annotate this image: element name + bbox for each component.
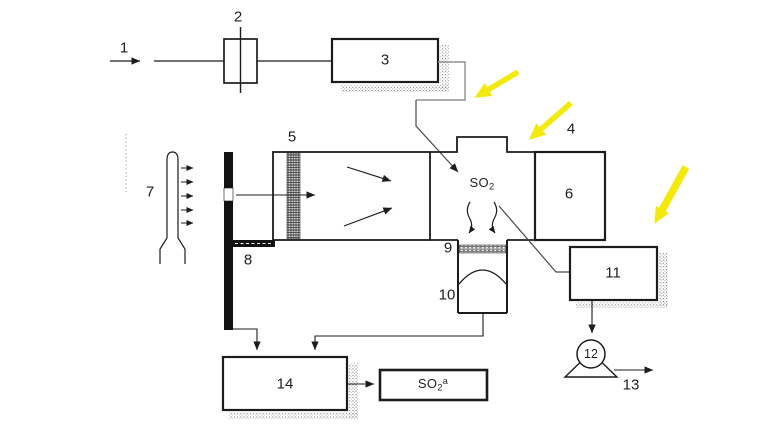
line-8-to-14: [233, 329, 257, 350]
label-4: 4: [567, 122, 575, 137]
label-8: 8: [244, 253, 252, 268]
schematic-linework: [0, 0, 780, 431]
yellow-arrow-1: [486, 72, 518, 91]
so2a-base: SO: [418, 376, 437, 391]
gas-wisp-left: [467, 202, 471, 233]
label-13: 13: [623, 378, 640, 393]
label-10: 10: [439, 288, 456, 303]
filter-5: [287, 153, 300, 239]
label-12: 12: [584, 348, 598, 361]
label-9: 9: [444, 241, 452, 256]
wall-window: [224, 188, 233, 201]
box-3: [332, 39, 449, 92]
so2-base: SO: [470, 175, 489, 190]
component-2-valve: [224, 27, 257, 93]
vessel-10-dome: [459, 270, 506, 284]
line-10-to-14: [315, 313, 483, 350]
so2-sub: 2: [489, 181, 495, 191]
so2-chamber-label: SO2: [470, 176, 495, 192]
emission-arrows: [181, 168, 193, 223]
label-1: 1: [120, 41, 128, 56]
label-11: 11: [605, 266, 621, 281]
filter-9-and-vessel-10: [458, 240, 507, 313]
label-6: 6: [565, 187, 573, 202]
label-3: 3: [381, 53, 389, 68]
main-chamber: [236, 152, 430, 240]
so2-output-label: SO2a: [418, 377, 448, 393]
yellow-arrow-3: [661, 167, 686, 212]
label-14: 14: [277, 377, 294, 392]
label-5: 5: [288, 130, 296, 145]
so2a-sup: a: [443, 376, 448, 386]
box-14: [223, 357, 374, 419]
gas-wisp-right: [492, 202, 496, 233]
label-7: 7: [146, 185, 154, 200]
filter-9: [459, 245, 506, 253]
label-2: 2: [234, 10, 242, 25]
lamp-7: [126, 134, 193, 264]
diagram-canvas: 1 2 3 4 5 6 7 8 9 10 11 12 13 14 SO2 SO2…: [0, 0, 780, 431]
